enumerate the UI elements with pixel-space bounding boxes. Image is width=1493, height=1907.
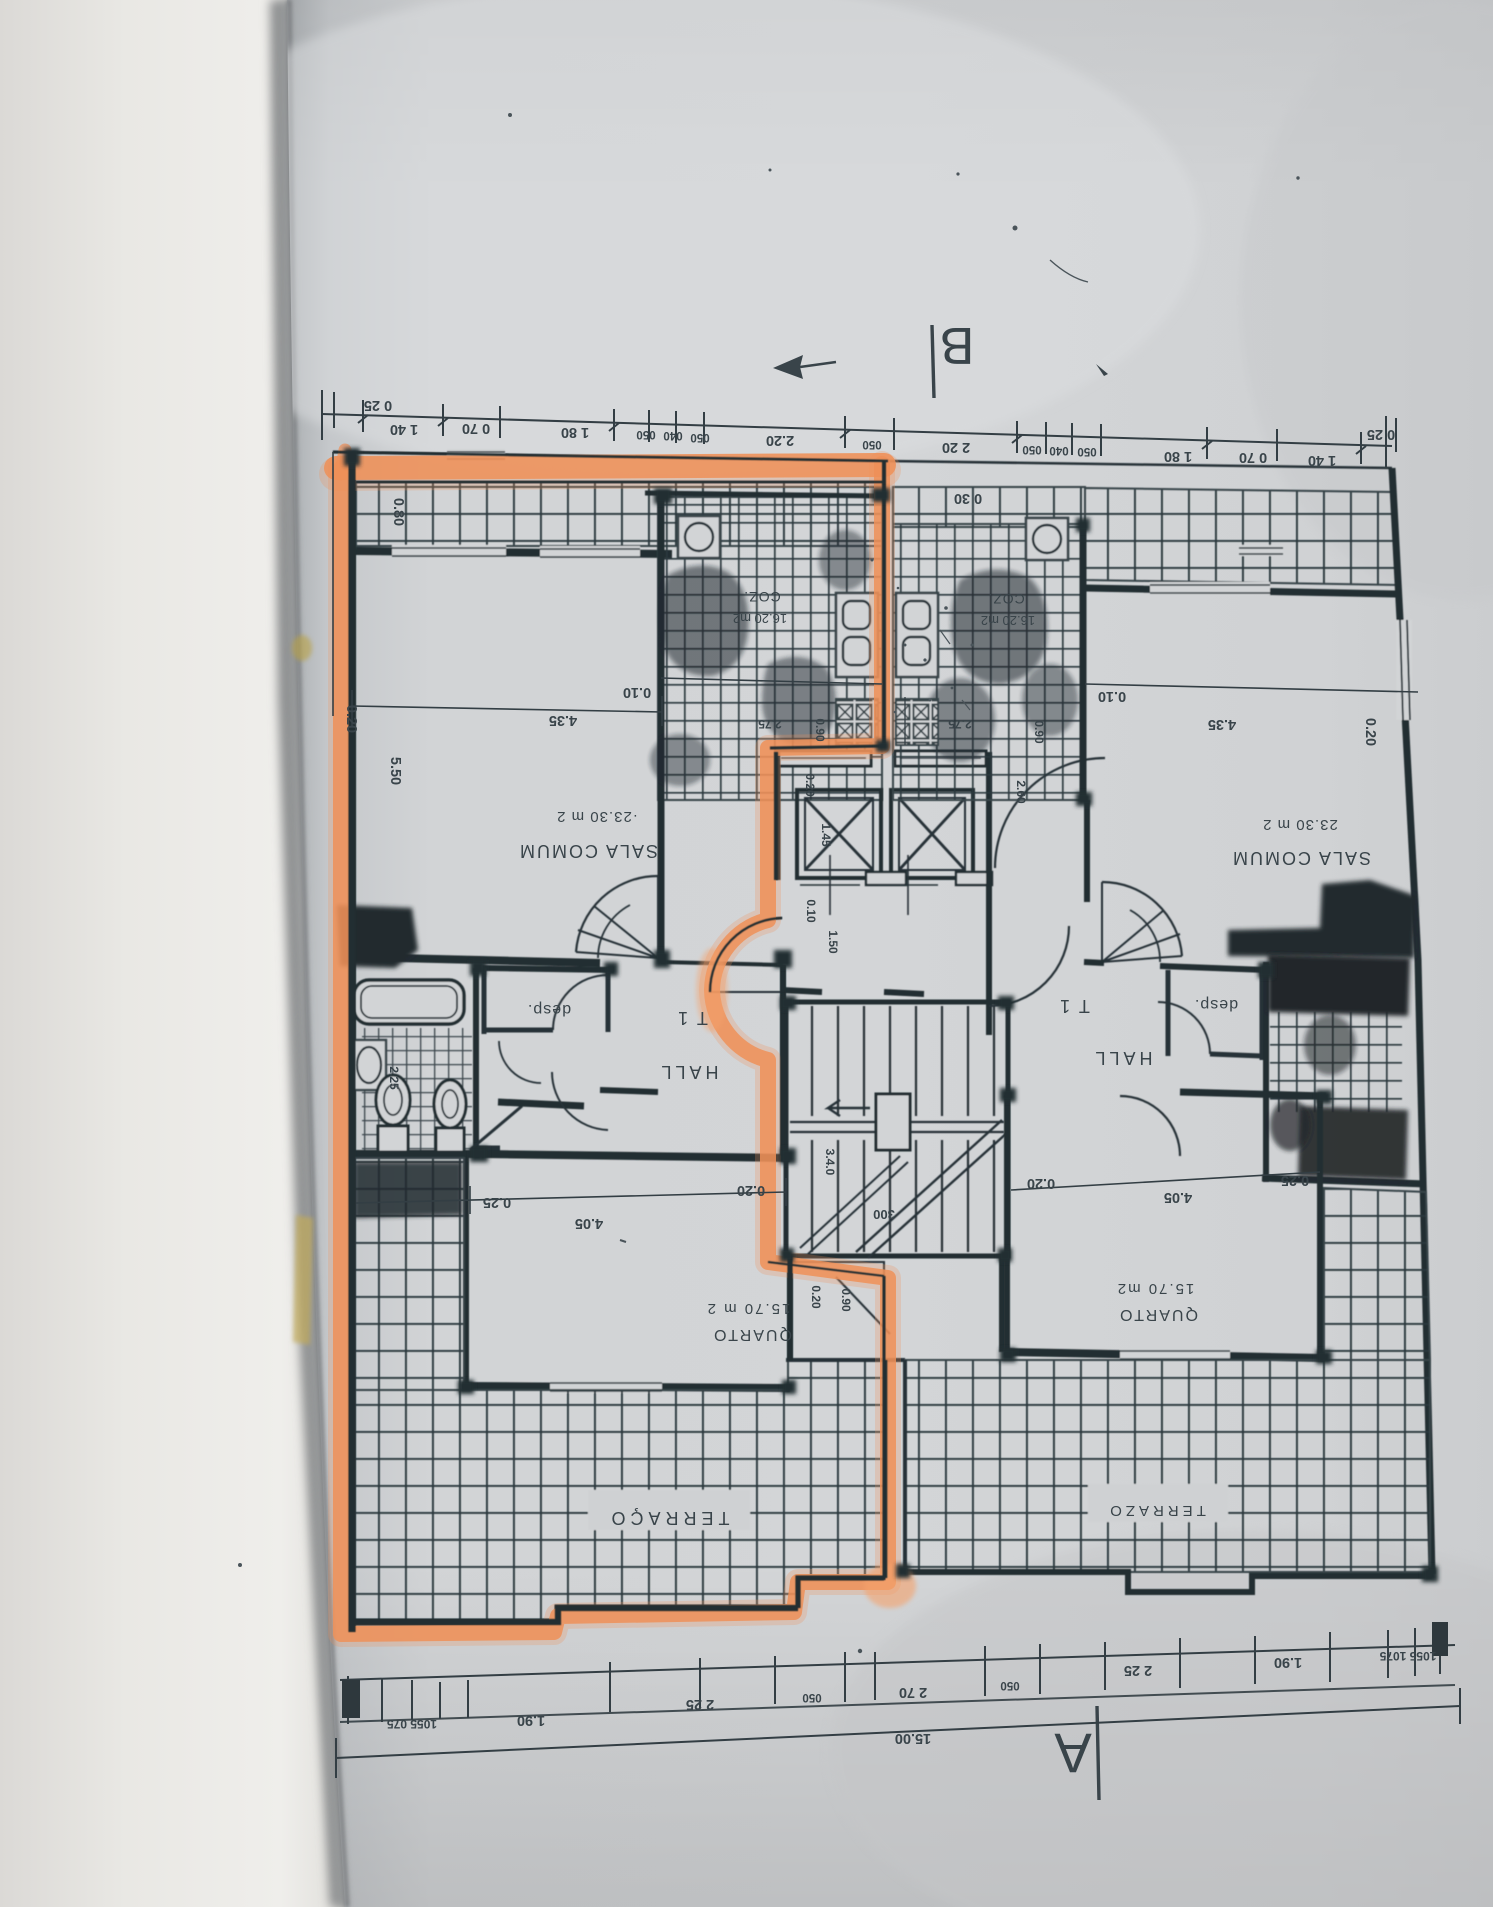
svg-text:15.70 m 2: 15.70 m 2: [706, 1300, 791, 1317]
svg-text:050: 050: [1077, 445, 1096, 457]
svg-text:040: 040: [1049, 444, 1068, 456]
svg-text:0.80: 0.80: [390, 498, 406, 526]
svg-text:1055 1075: 1055 1075: [1379, 1649, 1436, 1663]
svg-text:2 25: 2 25: [686, 1696, 714, 1712]
svg-text:2 70: 2 70: [899, 1684, 927, 1700]
svg-text:4.35: 4.35: [1208, 716, 1236, 732]
svg-text:1 80: 1 80: [561, 424, 589, 440]
svg-text:QUARTO: QUARTO: [1118, 1306, 1198, 1323]
svg-text:050: 050: [636, 428, 655, 440]
svg-text:2.75: 2.75: [948, 717, 972, 731]
svg-text:0.10: 0.10: [623, 684, 651, 700]
svg-text:0.10: 0.10: [804, 899, 818, 923]
svg-text:B: B: [938, 316, 975, 374]
svg-text:SALA COMUM: SALA COMUM: [518, 841, 658, 861]
svg-text:300: 300: [873, 1207, 895, 1222]
svg-text:1.90: 1.90: [1274, 1654, 1302, 1670]
svg-text:TERRAÇO: TERRAÇO: [606, 1508, 729, 1528]
svg-text:desp.: desp.: [1194, 996, 1238, 1013]
svg-text:0 30: 0 30: [954, 490, 982, 506]
svg-text:2.20: 2.20: [766, 432, 794, 448]
svg-text:0.20: 0.20: [1362, 718, 1378, 746]
svg-text:T 1: T 1: [676, 1008, 708, 1028]
svg-text:16.20 m2: 16.20 m2: [981, 613, 1035, 628]
svg-text:COZ.: COZ.: [987, 591, 1024, 607]
svg-text:050: 050: [1000, 1679, 1019, 1691]
svg-text:HALL: HALL: [657, 1062, 718, 1082]
svg-text:2.75: 2.75: [758, 717, 782, 731]
svg-text:0.90: 0.90: [813, 718, 827, 742]
svg-text:0 70: 0 70: [462, 420, 490, 436]
svg-text:2.60: 2.60: [1014, 780, 1028, 804]
svg-text:4.05: 4.05: [575, 1215, 603, 1231]
svg-text:0.20: 0.20: [1027, 1175, 1055, 1191]
svg-text:QUARTO: QUARTO: [712, 1326, 792, 1343]
svg-text:0.20: 0.20: [809, 1285, 823, 1309]
svg-text:0.20: 0.20: [803, 773, 817, 797]
svg-text:1.90: 1.90: [517, 1712, 545, 1728]
svg-text:0 70: 0 70: [1239, 449, 1267, 465]
svg-text:0.20: 0.20: [737, 1182, 765, 1198]
svg-text:0 25: 0 25: [364, 397, 392, 413]
svg-text:0.25: 0.25: [1281, 1172, 1309, 1188]
svg-text:desp.: desp.: [527, 1001, 571, 1018]
svg-text:·23.30 m 2: ·23.30 m 2: [556, 808, 638, 825]
svg-text:0.25: 0.25: [483, 1194, 511, 1210]
svg-text:23.30 m 2: 23.30 m 2: [1262, 816, 1338, 833]
svg-text:040: 040: [663, 429, 682, 441]
svg-text:2.25: 2.25: [387, 1066, 401, 1090]
svg-text:050: 050: [1022, 443, 1041, 455]
svg-text:1055 075: 1055 075: [387, 1717, 437, 1731]
svg-text:0.90: 0.90: [1032, 720, 1046, 744]
svg-text:0 25: 0 25: [1367, 426, 1395, 442]
svg-text:16.20 m2: 16.20 m2: [733, 611, 787, 626]
svg-text:5.50: 5.50: [387, 757, 403, 785]
svg-text:3.4.0: 3.4.0: [823, 1149, 837, 1176]
svg-text:0.20: 0.20: [343, 705, 359, 733]
svg-text:2 20: 2 20: [942, 439, 970, 455]
svg-text:050: 050: [802, 1691, 821, 1703]
svg-text:050: 050: [690, 431, 709, 443]
svg-text:050: 050: [862, 438, 881, 450]
svg-text:HALL: HALL: [1091, 1048, 1152, 1068]
svg-text:TERRAZO: TERRAZO: [1106, 1502, 1206, 1519]
svg-text:1 80: 1 80: [1164, 448, 1192, 464]
svg-text:1.45: 1.45: [819, 823, 833, 847]
svg-text:1.50: 1.50: [826, 930, 840, 954]
svg-text:15.70 m2: 15.70 m2: [1116, 1280, 1195, 1297]
svg-text:0.90: 0.90: [839, 1288, 853, 1312]
svg-text:T 1: T 1: [1058, 996, 1090, 1016]
svg-text:A: A: [1052, 1722, 1091, 1785]
svg-text:1 40: 1 40: [1308, 452, 1336, 468]
svg-text:1 40: 1 40: [390, 421, 418, 437]
svg-text:0.10: 0.10: [1098, 688, 1126, 704]
svg-text:4.05: 4.05: [1164, 1189, 1192, 1205]
svg-text:15.00: 15.00: [895, 1730, 931, 1746]
svg-text:SALA COMUM: SALA COMUM: [1231, 848, 1371, 868]
svg-text:COZ.: COZ.: [743, 589, 780, 605]
svg-text:2 25: 2 25: [1124, 1662, 1152, 1678]
svg-text:4.35: 4.35: [549, 712, 577, 728]
